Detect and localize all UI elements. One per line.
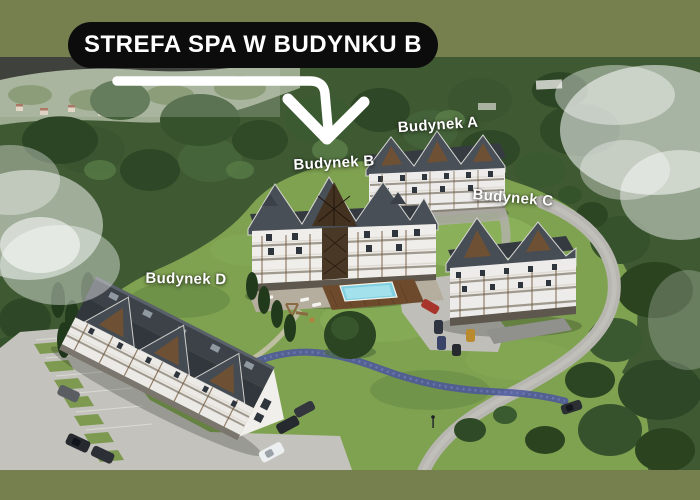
building-label-d: Budynek D xyxy=(145,270,226,288)
arrow-down-icon xyxy=(105,68,375,148)
title-badge: STREFA SPA W BUDYNKU B xyxy=(68,22,438,68)
image-canvas: STREFA SPA W BUDYNKU B Budynek A Budynek… xyxy=(0,0,700,500)
large-tree xyxy=(324,311,376,359)
distant-building-2 xyxy=(478,103,496,110)
